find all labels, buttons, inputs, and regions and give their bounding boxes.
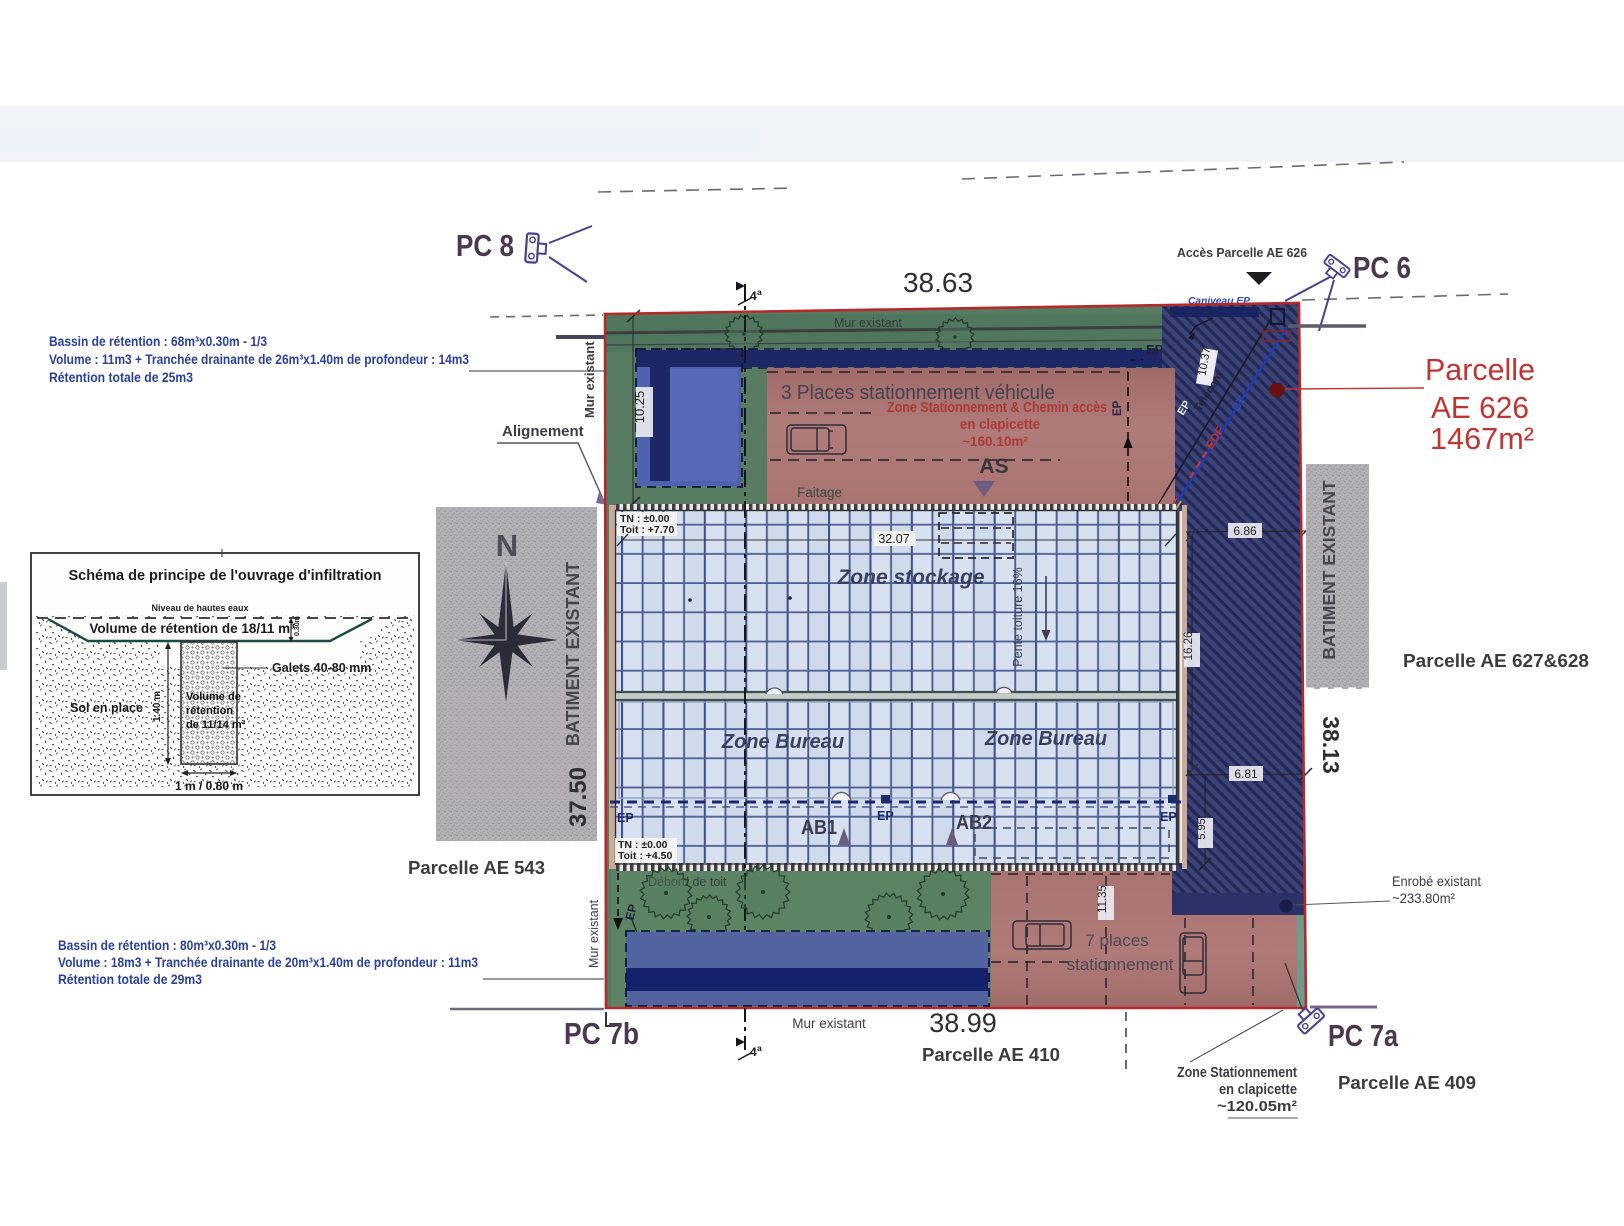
svg-text:Enrobé existant: Enrobé existant (1392, 873, 1481, 889)
svg-text:38.63: 38.63 (903, 267, 973, 298)
svg-text:BATIMENT EXISTANT: BATIMENT EXISTANT (1319, 480, 1339, 660)
svg-text:Zone Stationnement: Zone Stationnement (1177, 1064, 1297, 1081)
svg-text:Faitage: Faitage (797, 485, 842, 500)
svg-text:Parcelle AE 409: Parcelle AE 409 (1338, 1072, 1476, 1093)
svg-text:de 11/14 m³: de 11/14 m³ (186, 719, 246, 731)
svg-text:Toit : +4.50: Toit : +4.50 (618, 850, 673, 862)
svg-text:Galets 40-80 mm: Galets 40-80 mm (272, 661, 371, 675)
svg-text:AE 626: AE 626 (1431, 390, 1529, 425)
svg-text:0.30m: 0.30m (294, 616, 301, 636)
svg-text:Rétention totale de 25m3: Rétention totale de 25m3 (49, 369, 193, 385)
svg-text:AB2: AB2 (956, 812, 992, 834)
svg-text:Volume de: Volume de (186, 691, 241, 703)
svg-text:11.35: 11.35 (1097, 885, 1109, 913)
svg-text:AS: AS (979, 455, 1008, 478)
svg-text:PC 6: PC 6 (1353, 250, 1411, 285)
svg-text:Pente toiture 16%: Pente toiture 16% (1011, 567, 1025, 666)
svg-text:4: 4 (750, 1045, 757, 1059)
svg-text:7 places: 7 places (1085, 931, 1148, 950)
svg-text:Parcelle AE 410: Parcelle AE 410 (922, 1044, 1060, 1065)
svg-text:Parcelle AE 543: Parcelle AE 543 (408, 857, 545, 878)
svg-text:6.81: 6.81 (1234, 767, 1258, 781)
svg-text:Sol en place: Sol en place (70, 701, 143, 715)
svg-text:EP: EP (877, 809, 894, 823)
svg-text:Zone stockage: Zone stockage (836, 566, 984, 589)
svg-text:Bassin de rétention : 80m³x0.3: Bassin de rétention : 80m³x0.30m - 1/3 (58, 937, 276, 953)
svg-text:~120.05m²: ~120.05m² (1217, 1098, 1297, 1115)
svg-text:32.07: 32.07 (878, 532, 909, 546)
svg-text:Zone Stationnement & Chemin ac: Zone Stationnement & Chemin accès (887, 399, 1107, 416)
svg-text:4: 4 (750, 289, 757, 303)
svg-text:~160.10m²: ~160.10m² (962, 433, 1028, 449)
svg-text:5.95: 5.95 (1196, 818, 1208, 839)
svg-text:16.26: 16.26 (1183, 632, 1195, 661)
svg-text:PC 8: PC 8 (456, 228, 514, 263)
svg-text:10.25: 10.25 (632, 391, 647, 424)
svg-text:BATIMENT EXISTANT: BATIMENT EXISTANT (563, 562, 583, 746)
svg-text:1.40 m: 1.40 m (152, 691, 163, 722)
svg-text:Mur existant: Mur existant (834, 316, 903, 330)
svg-text:Zone Bureau: Zone Bureau (721, 731, 844, 753)
svg-text:N: N (496, 528, 518, 563)
svg-text:Mur existant: Mur existant (582, 341, 597, 418)
svg-text:EP: EP (1146, 342, 1164, 357)
svg-text:en clapicette: en clapicette (960, 416, 1040, 433)
svg-text:PC 7b: PC 7b (564, 1016, 639, 1051)
svg-text:Mur existant: Mur existant (792, 1016, 866, 1031)
svg-text:Mur existant: Mur existant (587, 899, 601, 968)
svg-text:Schéma de principe de l'ouvrag: Schéma de principe de l'ouvrage d'infilt… (68, 568, 381, 584)
svg-text:AB1: AB1 (801, 817, 837, 839)
svg-text:38.99: 38.99 (929, 1008, 997, 1038)
svg-text:EP: EP (1112, 400, 1124, 416)
svg-text:Alignement: Alignement (502, 423, 584, 440)
svg-text:Rétention totale de 29m3: Rétention totale de 29m3 (58, 971, 202, 987)
svg-text:Volume : 11m3 + Tranchée drain: Volume : 11m3 + Tranchée drainante de 26… (49, 351, 469, 367)
svg-text:stationnement: stationnement (1067, 955, 1174, 974)
svg-text:6.86: 6.86 (1233, 524, 1257, 538)
svg-text:Bassin de rétention : 68m³x0.3: Bassin de rétention : 68m³x0.30m - 1/3 (49, 333, 267, 349)
svg-text:Niveau de hautes eaux: Niveau de hautes eaux (151, 603, 248, 613)
svg-text:PC 7a: PC 7a (1328, 1018, 1399, 1053)
svg-text:Parcelle: Parcelle (1425, 352, 1535, 387)
svg-text:EP: EP (617, 811, 634, 825)
svg-text:rétention: rétention (186, 705, 233, 717)
svg-text:Volume : 18m3 + Tranchée drain: Volume : 18m3 + Tranchée drainante de 20… (58, 954, 478, 970)
svg-text:a: a (757, 287, 762, 297)
svg-text:Parcelle AE 627&628: Parcelle AE 627&628 (1403, 650, 1589, 671)
svg-text:1467m²: 1467m² (1430, 421, 1534, 456)
svg-text:Accès Parcelle AE 626: Accès Parcelle AE 626 (1177, 245, 1307, 260)
svg-text:Zone Bureau: Zone Bureau (984, 728, 1107, 750)
svg-text:en clapicette: en clapicette (1219, 1081, 1297, 1098)
svg-text:a: a (757, 1043, 762, 1053)
svg-text:EP: EP (1160, 810, 1177, 824)
svg-text:38.13: 38.13 (1318, 716, 1344, 774)
svg-text:37.50: 37.50 (565, 767, 592, 827)
svg-text:~233.80m²: ~233.80m² (1392, 890, 1455, 906)
svg-text:Volume de rétention de 18/11 m: Volume de rétention de 18/11 m³ (89, 621, 295, 636)
svg-text:1 m / 0.80 m: 1 m / 0.80 m (175, 779, 243, 793)
